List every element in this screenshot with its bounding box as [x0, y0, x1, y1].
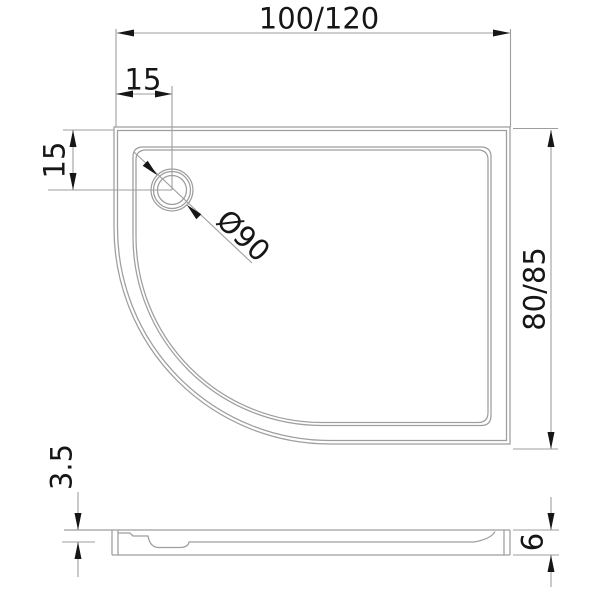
tray-outer-outline	[114, 127, 510, 444]
dim-basin-depth-label: 3.5	[48, 444, 77, 490]
side-basin-floor	[118, 532, 495, 548]
side-view	[64, 530, 510, 555]
dim-drain-offset-x-label: 15	[125, 66, 162, 95]
dimension-basin-depth	[62, 492, 95, 577]
dim-width-label: 100/120	[259, 5, 379, 34]
dim-drain-offset-y-label: 15	[41, 142, 70, 179]
top-view	[48, 86, 510, 444]
dim-depth-label: 80/85	[521, 247, 550, 331]
leader-arrowhead-lower	[187, 205, 202, 220]
shower-tray-technical-drawing: 100/120 15 15 Ø90 80/85 3.5 6	[0, 0, 600, 600]
tray-outer-outline-inner	[118, 131, 507, 441]
basin-outline-inner	[136, 150, 488, 423]
dimension-width	[116, 29, 511, 127]
dim-total-height-label: 6	[519, 533, 548, 551]
drawing-linework	[0, 0, 600, 600]
